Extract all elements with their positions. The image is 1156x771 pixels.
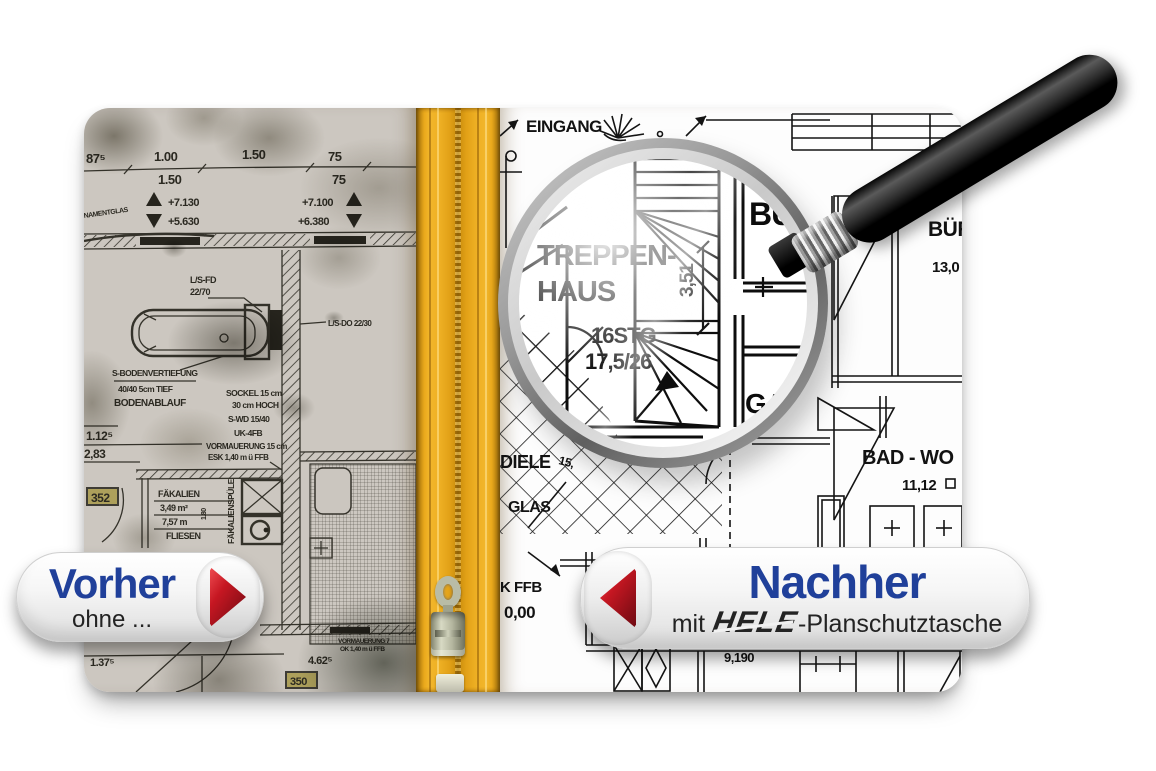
label-lsfd-size: 22/70 (190, 287, 211, 297)
label-area: 3,49 m² (160, 503, 188, 513)
dim-1375: 1.37⁵ (90, 657, 114, 669)
elevation-markers: +7.130 +5.630 +7.100 +6.380 NAMENTGLAS (84, 192, 362, 228)
label-ok140: OK 1,40 m ü FFB (340, 646, 385, 653)
magnifier-lens: 3,51 (519, 159, 807, 447)
label-13: 13,0 (932, 259, 959, 276)
room-352: 352 (87, 488, 123, 542)
label-esk: ESK 1,40 m ü FFB (208, 453, 269, 462)
elev-7100: +7.100 (302, 197, 333, 209)
triangle-right-icon (210, 568, 246, 626)
after-arrow-button[interactable] (584, 551, 652, 645)
room-number-350: 350 (290, 676, 307, 688)
label-spuele: FÄKALIENSPÜLE (226, 478, 236, 544)
label-fakalien: FÄKALIEN (158, 489, 200, 499)
dim-150a: 1.50 (242, 147, 266, 162)
label-diele: DIELE (500, 452, 551, 472)
before-subtitle: ohne ... (72, 608, 152, 632)
fakalien-room: FÄKALIEN 3,49 m² 7,57 m FLIESEN 1.80 FÄK… (142, 478, 236, 548)
magnified-staircase: 3,51 (635, 159, 719, 427)
magnified-label-steigung: 17,5/26 (585, 349, 652, 374)
dim-100: 1.00 (154, 149, 178, 164)
hele-brand-logo: HELE (710, 608, 799, 638)
zipper (416, 108, 500, 692)
label-ukfb: UK-4FB (234, 428, 263, 438)
vertical-wall (282, 250, 300, 630)
label-buero: BÜR (928, 218, 962, 241)
sanitary-fixtures (242, 480, 282, 544)
after-subtitle-prefix: mit (672, 612, 705, 637)
before-banner-text: Vorher ohne ... (31, 553, 193, 641)
dim-150b: 1.50 (158, 172, 182, 187)
zipper-pull-ring[interactable] (435, 576, 461, 608)
elev-7130: +7.130 (168, 197, 199, 209)
triangle-left-icon (600, 569, 636, 627)
left-dimensions: 1.12⁵ 2,83 (84, 426, 202, 462)
label-fliesen: FLIESEN (166, 531, 201, 541)
top-wall-band (84, 232, 416, 249)
page-background: 87⁵ 1.00 1.50 1.50 75 75 +7.130 +5.630 +… (0, 0, 1156, 771)
mesh-floor (310, 464, 416, 644)
elev-5630: +5.630 (168, 216, 199, 228)
magnifier-rim-inner: 3,51 (508, 148, 818, 458)
label-kffb: K FFB (500, 579, 542, 596)
magnified-label-haus: HAUS (537, 276, 616, 308)
magnified-label-bu: BU (749, 196, 793, 232)
magnified-plan-view: 3,51 (519, 159, 807, 447)
label-9190: 9,190 (724, 650, 754, 665)
before-title: Vorher (49, 563, 175, 605)
bathtub: L/S-FD 22/70 L/S-DO 22/30 (132, 275, 372, 359)
magnifying-glass: 3,51 (498, 138, 828, 468)
floor-notes: S-BODENVERTIEFUNG 40/40 5cm TIEF BODENAB… (112, 356, 287, 470)
magnified-label-treppen: TREPPEN- (537, 240, 676, 272)
label-vormauerung-2: VORMAUERUNG 7 (338, 638, 390, 645)
room-number-352: 352 (91, 491, 110, 505)
zipper-slider[interactable] (431, 612, 465, 656)
label-umfang: 7,57 m (162, 517, 188, 527)
label-hoch: 30 cm HOCH (232, 400, 279, 410)
elev-6380: +6.380 (298, 216, 329, 228)
after-banner[interactable]: Nachher mit HELE -Planschutztasche (580, 547, 1030, 649)
label-lsfd: L/S-FD (190, 275, 217, 285)
dim-1125: 1.12⁵ (86, 429, 113, 443)
label-000: 0,00 (504, 603, 535, 622)
after-subtitle: mit HELE -Planschutztasche (672, 608, 1003, 638)
label-eingang: EINGANG (526, 117, 602, 136)
label-1112: 11,12 (902, 477, 936, 494)
label-ornamentglas: NAMENTGLAS (84, 207, 129, 220)
label-sboden: S-BODENVERTIEFUNG (112, 368, 198, 378)
label-bad: BAD - WO (862, 447, 954, 469)
before-arrow-button[interactable] (196, 556, 260, 638)
before-banner[interactable]: Vorher ohne ... (16, 552, 264, 642)
label-swd: S-WD 15/40 (228, 414, 270, 424)
zipper-end-stop (436, 674, 464, 692)
plant-symbol (598, 114, 644, 140)
dimension-chain: 87⁵ 1.00 1.50 1.50 75 75 (84, 147, 416, 187)
label-tief: 40/40 5cm TIEF (118, 384, 173, 394)
label-lsdo: L/S-DO 22/30 (328, 319, 372, 328)
magnified-dim-351: 3,51 (677, 263, 698, 297)
bottom-wall-row: 9,190 (586, 645, 962, 692)
after-banner-text: Nachher mit HELE -Planschutztasche (657, 548, 1017, 648)
bad-room: BAD - WO 11,12 (818, 396, 962, 554)
dim-75a: 75 (328, 149, 342, 164)
after-subtitle-suffix: -Planschutztasche (798, 612, 1002, 637)
label-vormauerung: VORMAUERUNG 15 cm (206, 442, 287, 451)
after-title: Nachher (748, 559, 925, 605)
label-ablauf: BODENABLAUF (114, 398, 186, 409)
dim-875: 87⁵ (86, 151, 105, 166)
dim-75b: 75 (332, 172, 346, 187)
label-sockel: SOCKEL 15 cm (226, 388, 283, 398)
dim-283: 2,83 (84, 447, 106, 461)
magnified-label-16stg: 16STG (591, 323, 656, 348)
label-180: 1.80 (201, 508, 208, 520)
dim-4625: 4.62⁵ (308, 655, 332, 667)
